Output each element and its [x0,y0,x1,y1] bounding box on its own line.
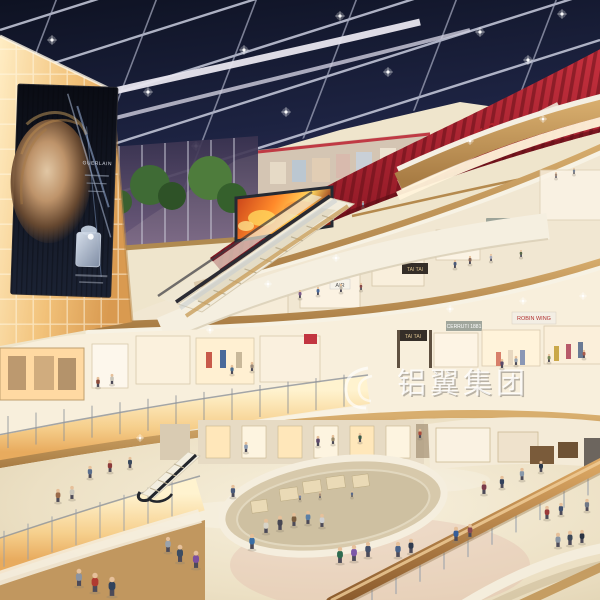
taitai-sign-lower-text: TAI TAI [405,334,421,340]
right-walkway-shops [428,417,600,470]
robin-sign-text: ROBIN WING [517,316,551,322]
mall-atrium-scene: THEATRES CERRUTI 1881 TAI TAI AIR [0,0,600,600]
scene-svg: THEATRES CERRUTI 1881 TAI TAI AIR [0,0,600,600]
billboard: GUERLAIN [7,84,118,298]
red-shop-sign [304,334,317,344]
taitai-sign-upper-text: TAI TAI [407,267,423,273]
cerruti-sign-lower-text: CERRUTI 1881 [447,324,482,330]
watermark-text: 铝翼集团 [397,367,529,400]
billboard-brand-text: GUERLAIN [82,160,112,167]
